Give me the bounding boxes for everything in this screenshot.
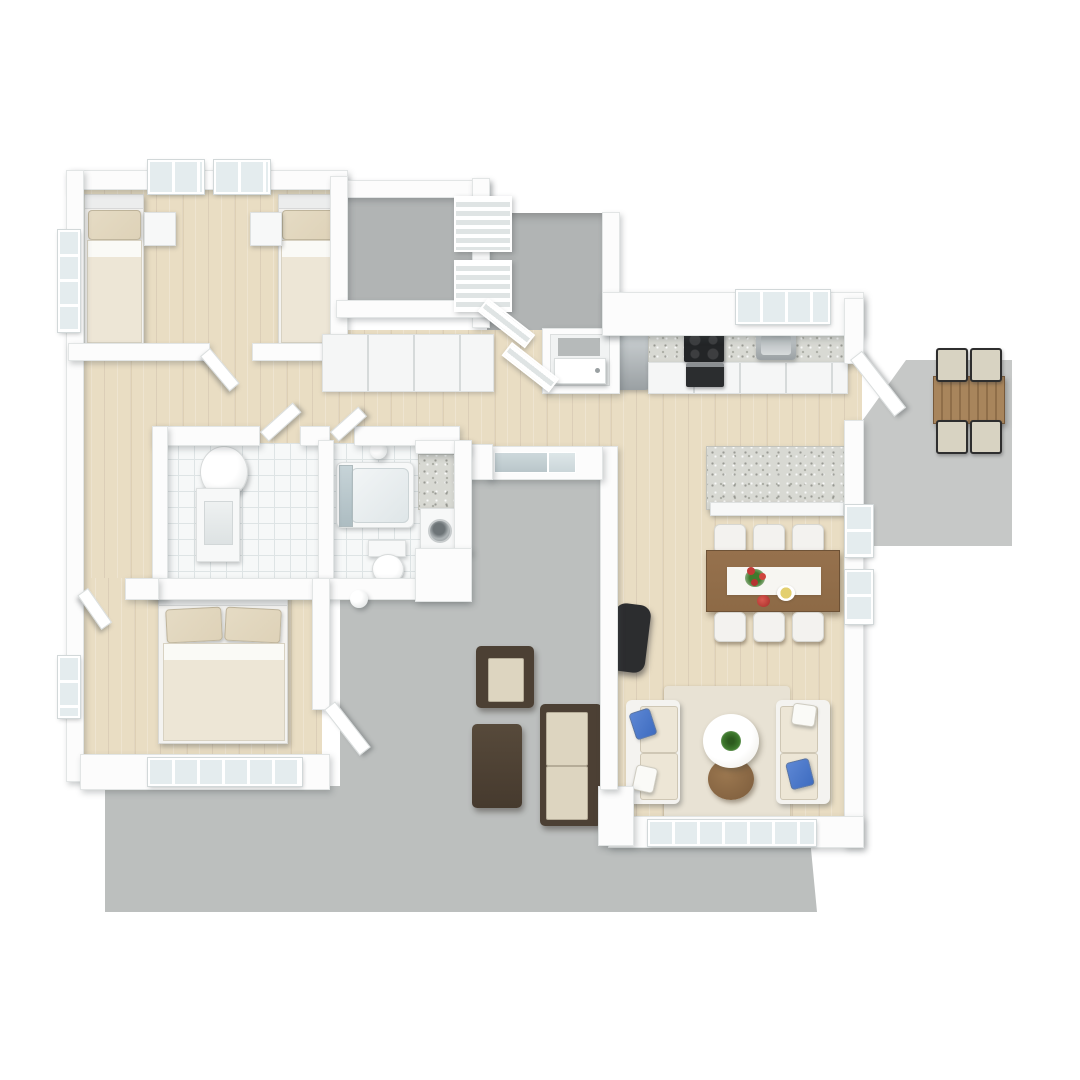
porch-railing-panel xyxy=(454,196,512,252)
patio-dining-table xyxy=(933,376,1005,424)
door-handle xyxy=(595,368,600,373)
loveseat-cushion xyxy=(546,766,588,820)
window-living-right xyxy=(845,505,873,557)
wall-bath-left xyxy=(152,426,168,600)
window-bedroom-top xyxy=(148,160,204,194)
loveseat-cushion xyxy=(546,712,588,766)
nightstand xyxy=(144,212,176,246)
kitchen-island-base xyxy=(710,502,844,516)
laundry-counter xyxy=(418,454,458,510)
red-flower xyxy=(747,567,755,575)
window-living-right xyxy=(845,570,873,624)
coffee-table-round xyxy=(703,714,759,768)
window-kitchen xyxy=(736,290,830,324)
dining-chair xyxy=(792,612,824,642)
bathroom-vanity xyxy=(196,488,240,562)
nightstand xyxy=(250,212,282,246)
front-door xyxy=(554,358,606,384)
twin-bed xyxy=(84,194,144,346)
white-pillow xyxy=(791,702,818,727)
outdoor-loveseat xyxy=(540,704,602,826)
sofa-right xyxy=(776,700,830,804)
red-bowl xyxy=(757,595,770,607)
patio-chair xyxy=(970,348,1002,382)
outdoor-armchair xyxy=(476,646,534,708)
headboard xyxy=(85,195,143,209)
courtyard-floor-west xyxy=(340,598,454,788)
patio-chair xyxy=(970,420,1002,454)
wall-bath-top-west xyxy=(152,426,260,446)
red-flower xyxy=(751,579,758,586)
washing-machine xyxy=(420,508,456,552)
wall-master-right xyxy=(312,578,330,710)
sliding-glass-door xyxy=(494,452,548,473)
kitchen-island xyxy=(706,446,848,510)
food-plate xyxy=(777,585,795,601)
washer-door xyxy=(428,519,452,543)
armchair-cushion xyxy=(488,658,524,702)
wall-laundry-bottom-chunk xyxy=(415,548,472,602)
shower-glass-panel xyxy=(339,465,353,527)
wall-right-main xyxy=(844,420,864,847)
outdoor-coffee-table xyxy=(472,724,522,808)
wall-living-bottom-corner xyxy=(598,786,634,846)
table-runner xyxy=(727,567,821,595)
wall-bath-middle xyxy=(318,440,334,590)
wall-master-entry-jamb xyxy=(125,578,159,600)
bed-blanket xyxy=(163,643,285,741)
hallway-left-corridor-floor xyxy=(78,440,162,590)
vanity-sink xyxy=(204,501,233,545)
front-door-mat xyxy=(558,338,600,356)
bed-blanket xyxy=(87,240,142,343)
headboard xyxy=(279,195,337,209)
wardrobe-row xyxy=(322,334,494,392)
bed-pillow xyxy=(165,607,223,644)
oven xyxy=(686,363,724,387)
window-master-left xyxy=(58,656,80,718)
bathtub-basin xyxy=(351,468,409,523)
red-flower xyxy=(759,573,766,580)
floorplan-3d-render xyxy=(0,0,1080,1080)
wall-courtyard-living-divider xyxy=(600,446,618,790)
window-bedroom-left xyxy=(58,230,80,332)
wall-bedroom-bottom-west xyxy=(68,343,210,361)
bed-pillow xyxy=(88,210,141,240)
wall-laundry-right xyxy=(454,440,472,554)
sofa-left xyxy=(626,700,680,804)
dining-chair xyxy=(714,612,746,642)
twin-bed xyxy=(278,194,338,346)
bathtub xyxy=(336,462,414,528)
wall-lamp xyxy=(350,590,368,608)
bed-pillow xyxy=(282,210,335,240)
bed-blanket xyxy=(281,240,336,343)
bed-pillow xyxy=(224,607,282,644)
patio-chair xyxy=(936,420,968,454)
kitchen-base-cabinets xyxy=(648,362,848,394)
potted-plant xyxy=(721,731,741,751)
double-bed xyxy=(158,590,288,744)
window-living-bottom xyxy=(648,820,816,846)
window-master-bottom xyxy=(148,758,302,786)
wall-top-bedroom xyxy=(68,170,348,190)
window-bedroom-top xyxy=(214,160,270,194)
sink-basin xyxy=(761,335,791,355)
sliding-glass-door xyxy=(548,452,576,473)
dining-table xyxy=(706,550,840,612)
patio-chair xyxy=(936,348,968,382)
dining-chair xyxy=(753,612,785,642)
